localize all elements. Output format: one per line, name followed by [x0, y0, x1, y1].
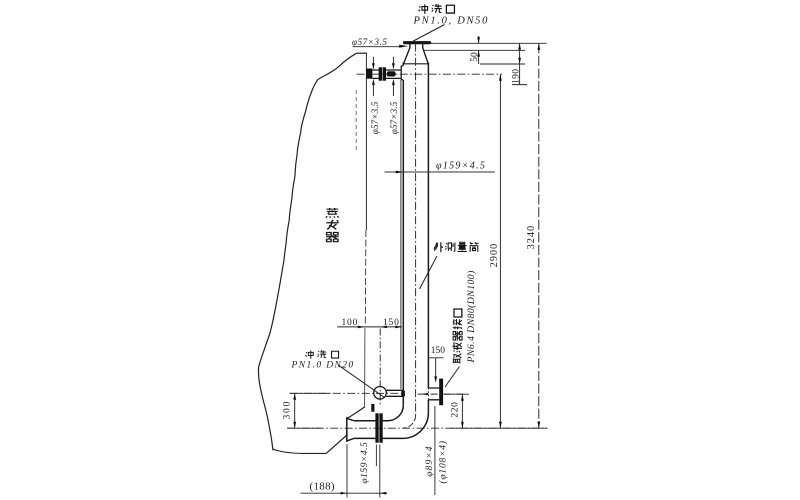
svg-text:φ89×4: φ89×4 — [425, 445, 435, 476]
svg-text:φ57×3.5: φ57×3.5 — [370, 101, 380, 134]
svg-text:φ57×3.5: φ57×3.5 — [389, 101, 399, 134]
svg-text:PN1.0 DN20: PN1.0 DN20 — [291, 361, 355, 371]
svg-text:150: 150 — [383, 318, 400, 328]
svg-text:φ57×3.5: φ57×3.5 — [352, 37, 388, 47]
svg-text:PN1.0, DN50: PN1.0, DN50 — [413, 15, 490, 26]
svg-text:220: 220 — [451, 402, 461, 418]
svg-text:190: 190 — [512, 69, 522, 84]
svg-text:φ159×4.5: φ159×4.5 — [360, 442, 370, 484]
svg-text:(φ108×4): (φ108×4) — [438, 440, 449, 483]
svg-text:300: 300 — [282, 400, 292, 420]
svg-text:3240: 3240 — [526, 225, 537, 249]
svg-text:100: 100 — [342, 318, 359, 328]
svg-text:50: 50 — [470, 52, 480, 62]
svg-text:φ159×4.5: φ159×4.5 — [436, 160, 486, 171]
svg-text:150: 150 — [431, 346, 446, 356]
svg-text:PN6.4 DN80(DN100): PN6.4 DN80(DN100) — [466, 270, 477, 363]
svg-text:2900: 2900 — [489, 243, 500, 267]
svg-text:(188): (188) — [310, 481, 335, 493]
